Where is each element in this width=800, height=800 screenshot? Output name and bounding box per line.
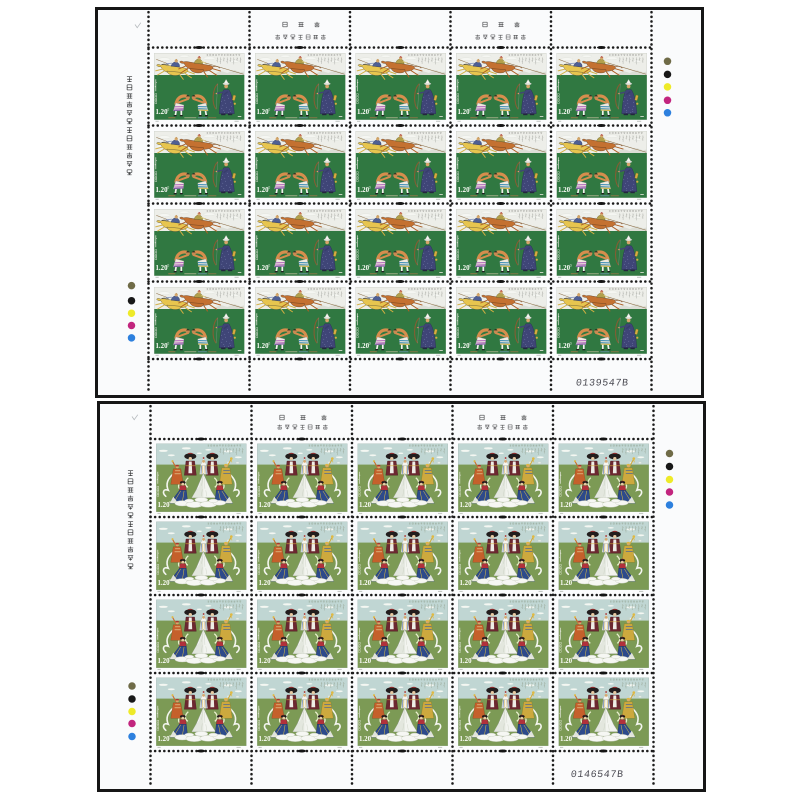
svg-text:0139547B: 0139547B	[575, 378, 629, 389]
svg-text:0146547B: 0146547B	[570, 770, 624, 781]
